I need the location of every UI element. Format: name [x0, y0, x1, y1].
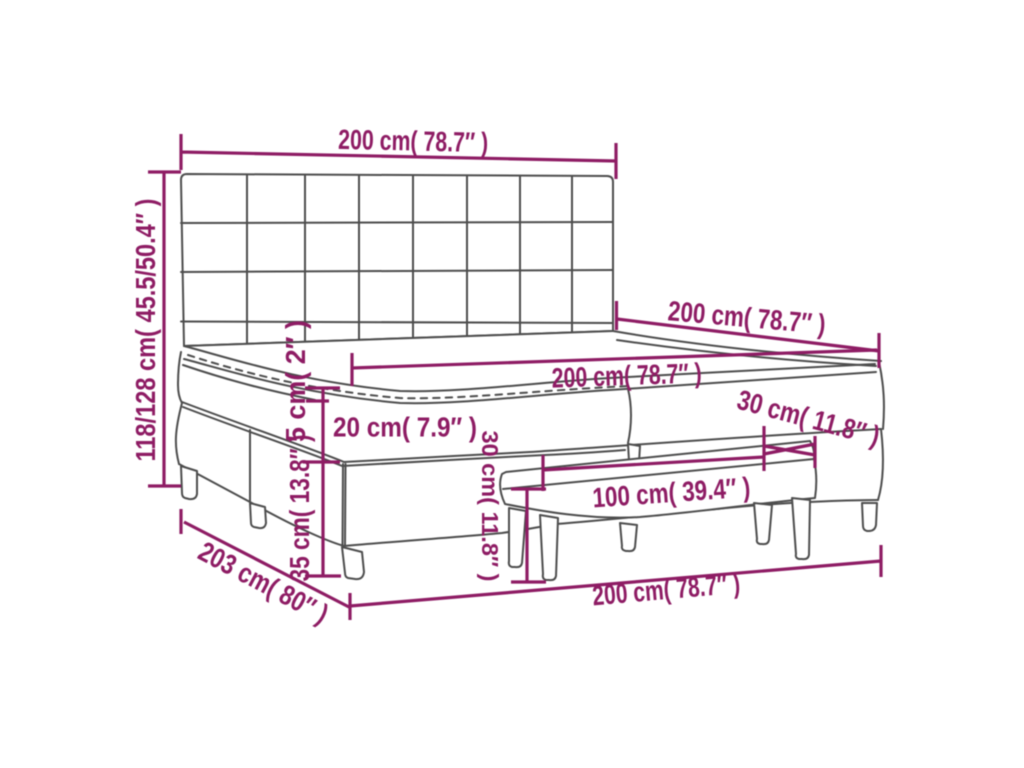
svg-text:20 cm( 7.9″ ): 20 cm( 7.9″ ) [333, 412, 477, 443]
svg-text:30 cm( 11.8″ ): 30 cm( 11.8″ ) [477, 431, 503, 582]
svg-text:200 cm( 78.7″ ): 200 cm( 78.7″ ) [338, 124, 489, 158]
svg-text:200 cm( 78.7″ ): 200 cm( 78.7″ ) [551, 357, 702, 393]
svg-text:35 cm( 13.8″ ): 35 cm( 13.8″ ) [284, 435, 315, 582]
svg-text:118/128 cm( 45.5/50.4″ ): 118/128 cm( 45.5/50.4″ ) [130, 199, 161, 462]
svg-text:5 cm( 2″ ): 5 cm( 2″ ) [280, 320, 311, 442]
